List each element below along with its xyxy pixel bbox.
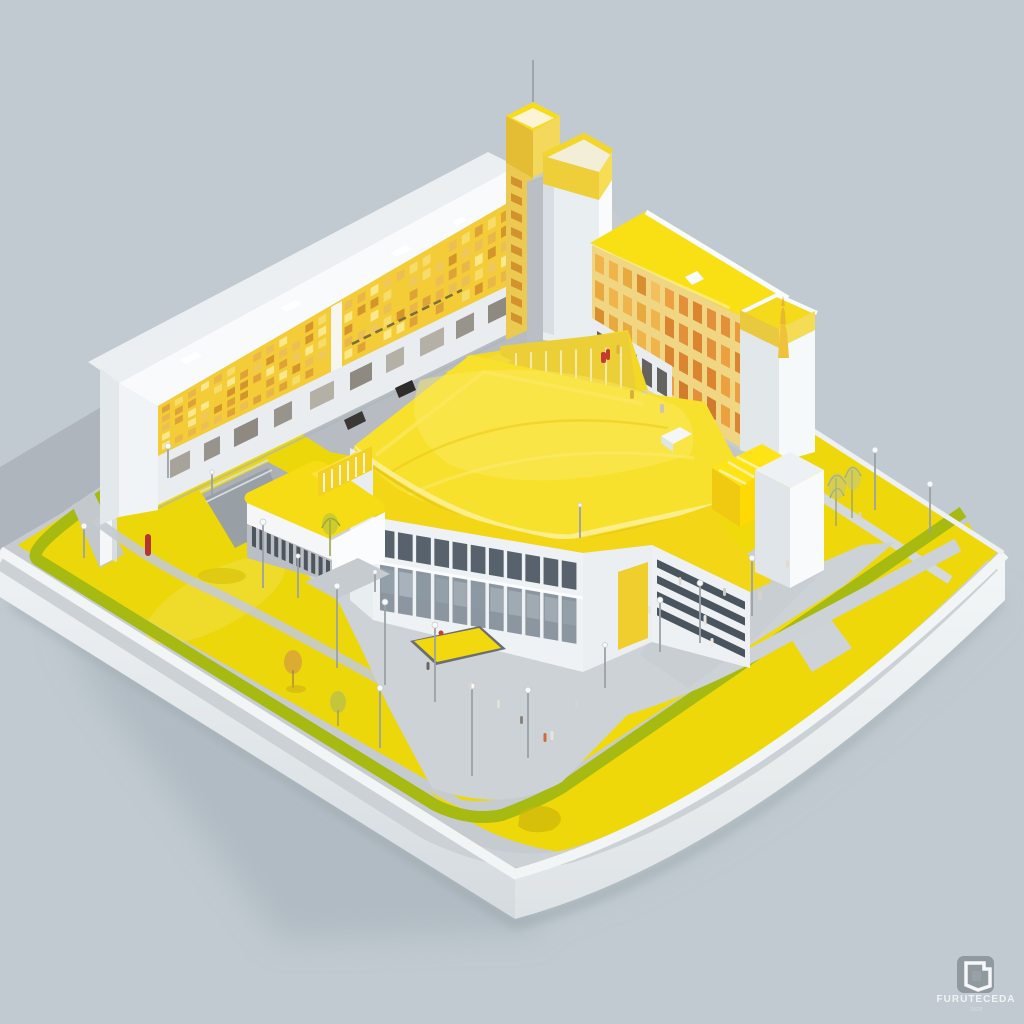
svg-text:2023: 2023: [970, 1007, 982, 1013]
svg-text:FURUTECEDA: FURUTECEDA: [937, 994, 1016, 1005]
